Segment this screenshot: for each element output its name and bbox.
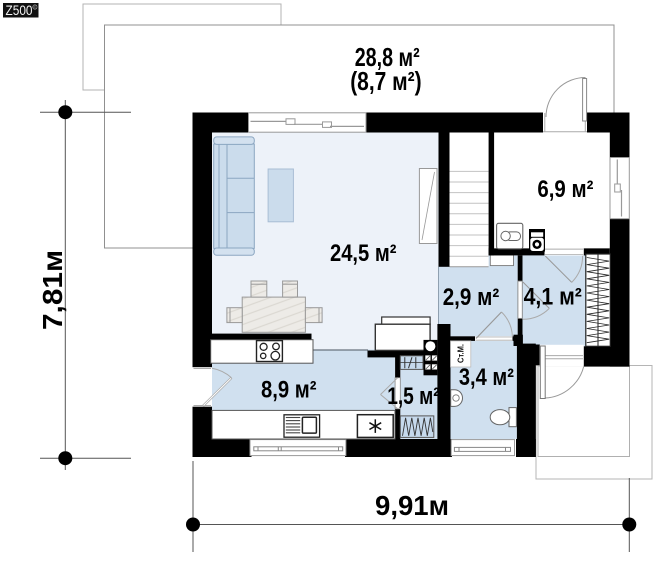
svg-text:24,5 м²: 24,5 м² (330, 240, 397, 267)
svg-text:8,9 м²: 8,9 м² (261, 377, 317, 404)
svg-text:Ст.М.: Ст.М. (457, 344, 466, 363)
svg-text:9,91м: 9,91м (375, 490, 449, 521)
svg-text:3,4 м²: 3,4 м² (459, 364, 514, 391)
svg-text:1,5 м²: 1,5 м² (387, 383, 440, 410)
svg-text:Z500: Z500 (6, 3, 33, 18)
svg-text:(8,7 м²): (8,7 м²) (350, 66, 421, 96)
svg-text:©: © (33, 4, 38, 12)
svg-text:7,81м: 7,81м (37, 250, 68, 330)
svg-text:6,9 м²: 6,9 м² (537, 176, 593, 203)
svg-text:4,1 м²: 4,1 м² (524, 284, 582, 311)
svg-text:2,9 м²: 2,9 м² (443, 284, 500, 311)
